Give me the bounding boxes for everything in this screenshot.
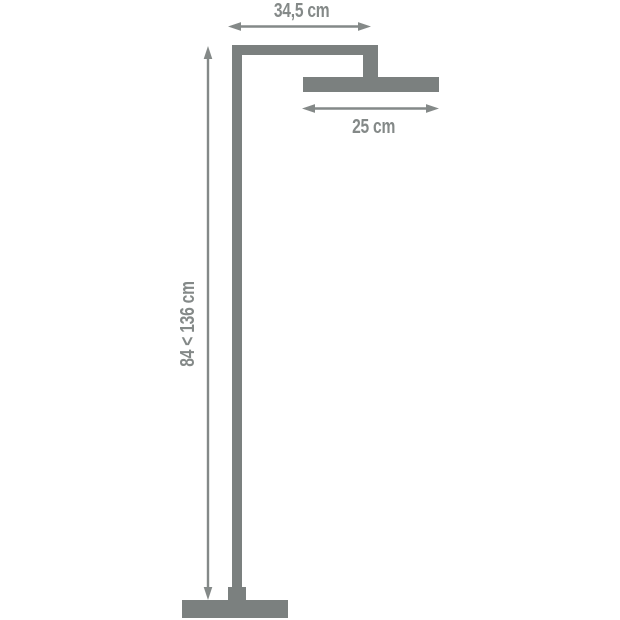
vertical-pole <box>232 45 242 590</box>
shower-column-figure <box>182 45 439 618</box>
arrowhead-right-icon <box>358 22 371 31</box>
arrowhead-right-icon <box>426 104 439 113</box>
top-support-arm <box>232 45 378 55</box>
arm-width-dimension <box>228 22 371 31</box>
product-dimension-diagram: 34,5 cm 25 cm 84 < 136 cm <box>0 0 620 620</box>
arrowhead-down-icon <box>204 587 213 600</box>
pole-collar <box>228 587 246 602</box>
pole-height-dimension <box>204 46 213 600</box>
diagram-canvas <box>0 0 620 620</box>
arrowhead-left-icon <box>302 104 315 113</box>
head-width-dimension <box>302 104 439 113</box>
arrowhead-up-icon <box>204 46 213 59</box>
base-plate <box>182 600 288 618</box>
arrowhead-left-icon <box>228 22 241 31</box>
shower-head <box>303 77 439 92</box>
